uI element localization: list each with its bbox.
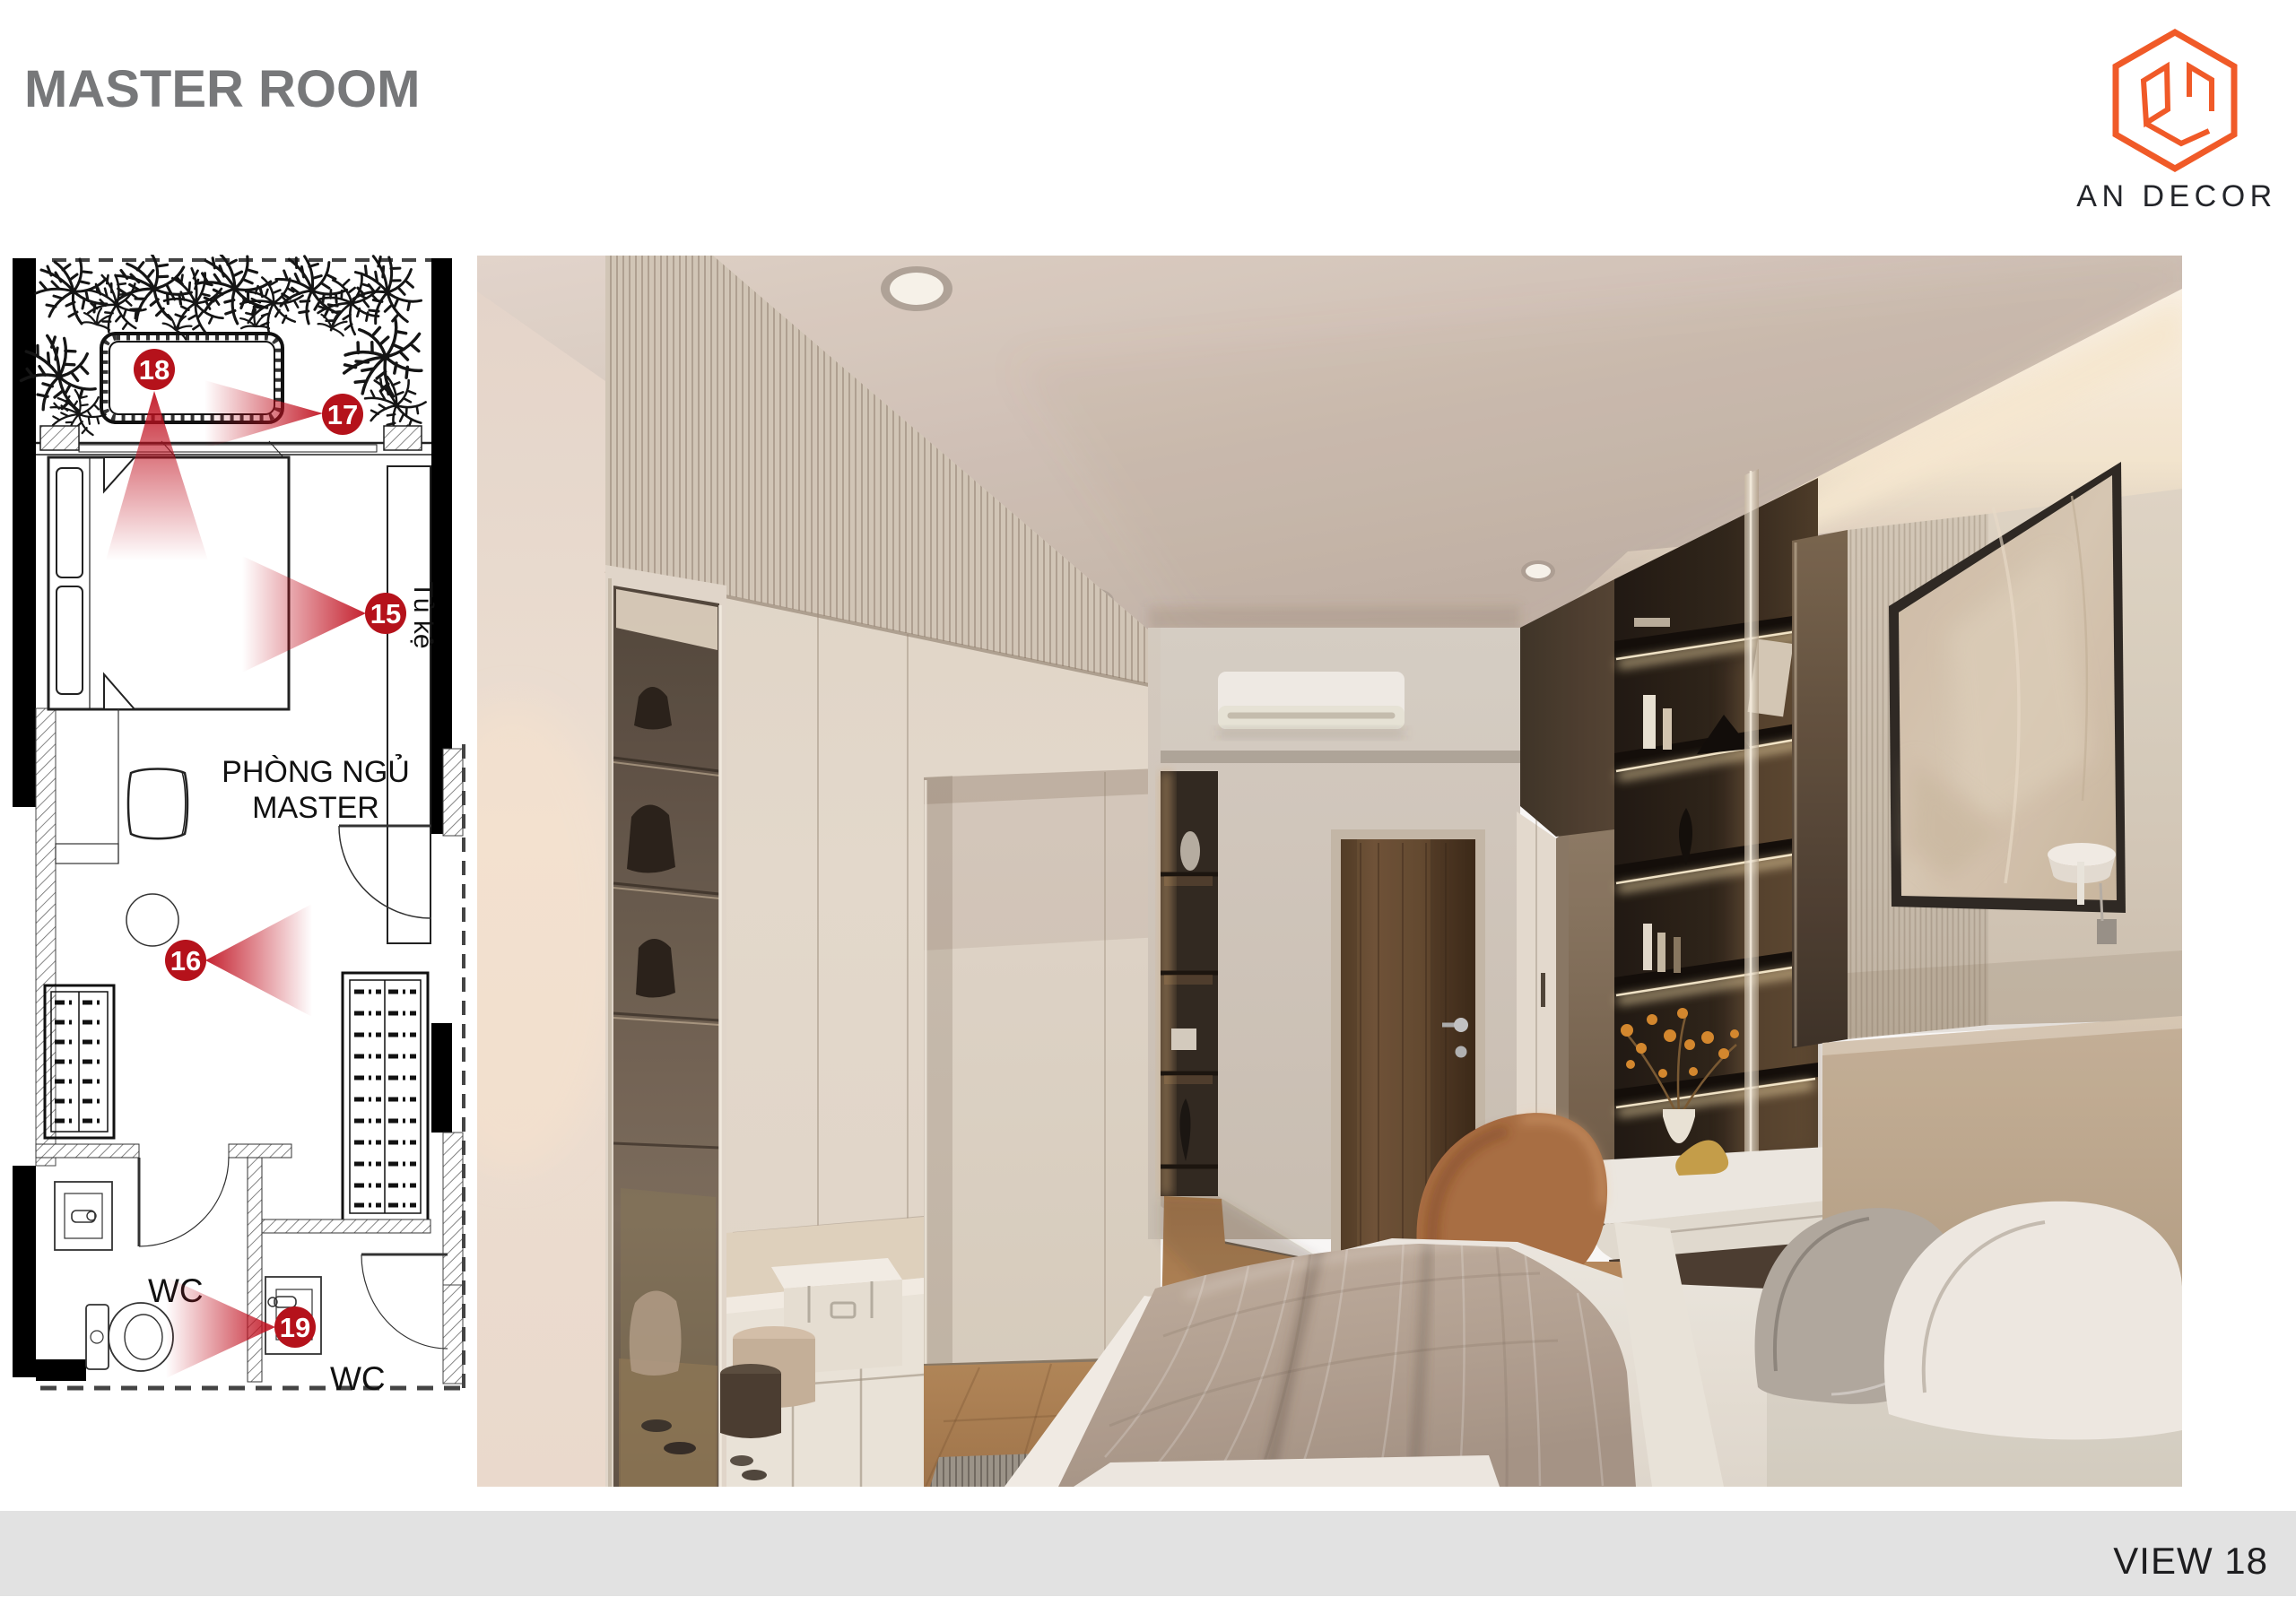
- svg-text:Tủ kệ: Tủ kệ: [408, 581, 438, 648]
- svg-text:17: 17: [327, 399, 358, 430]
- svg-text:MASTER: MASTER: [252, 791, 379, 825]
- svg-text:16: 16: [170, 945, 201, 976]
- svg-text:WC: WC: [330, 1360, 386, 1397]
- svg-text:15: 15: [370, 598, 401, 629]
- svg-text:PHÒNG NGỦ: PHÒNG NGỦ: [222, 755, 410, 789]
- svg-text:19: 19: [280, 1312, 310, 1343]
- svg-text:AN DECOR: AN DECOR: [2076, 179, 2276, 213]
- svg-text:18: 18: [139, 354, 170, 386]
